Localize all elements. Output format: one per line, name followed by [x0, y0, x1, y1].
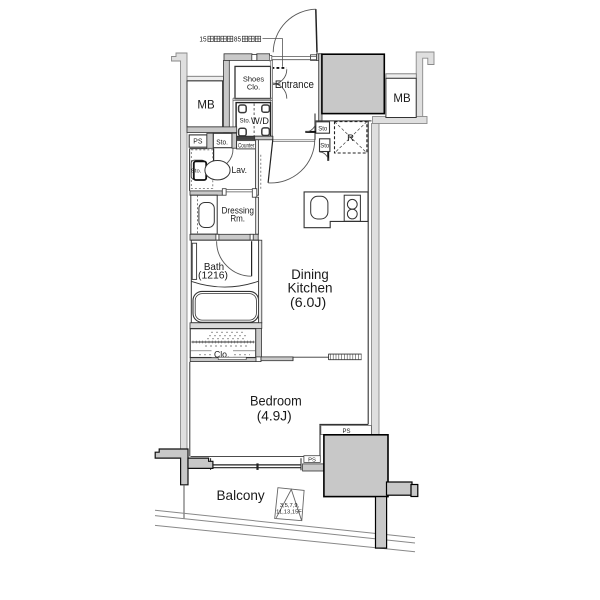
svg-text:3,5,7,9,: 3,5,7,9, — [280, 503, 300, 509]
svg-text:Sto.: Sto. — [216, 138, 228, 147]
svg-text:85: 85 — [234, 36, 241, 43]
svg-text:Sto: Sto — [318, 126, 328, 132]
svg-text:Lav.: Lav. — [232, 165, 248, 176]
svg-text:MB: MB — [393, 93, 411, 105]
svg-text:PS: PS — [193, 136, 202, 145]
svg-text:R: R — [347, 133, 354, 144]
svg-text:Entrance: Entrance — [275, 79, 314, 91]
svg-text:15: 15 — [199, 36, 206, 43]
svg-text:Rm.: Rm. — [230, 214, 245, 225]
svg-text:MB: MB — [197, 100, 215, 112]
svg-text:(4.9J): (4.9J) — [257, 408, 292, 424]
svg-text:PS: PS — [308, 457, 316, 463]
svg-text:(6.0J): (6.0J) — [290, 294, 326, 310]
svg-text:Balcony: Balcony — [217, 488, 265, 503]
svg-text:Counter: Counter — [238, 142, 255, 149]
svg-text:W/D: W/D — [251, 116, 269, 127]
svg-text:Sto.: Sto. — [191, 168, 202, 174]
svg-text:11,13,15F: 11,13,15F — [276, 510, 302, 516]
svg-text:Clo.: Clo. — [247, 83, 260, 92]
svg-text:(1216): (1216) — [198, 270, 228, 281]
svg-text:Bedroom: Bedroom — [250, 393, 302, 408]
svg-text:PS: PS — [342, 429, 350, 435]
svg-text:Sto: Sto — [320, 144, 330, 150]
svg-text:Sto.: Sto. — [240, 119, 251, 125]
